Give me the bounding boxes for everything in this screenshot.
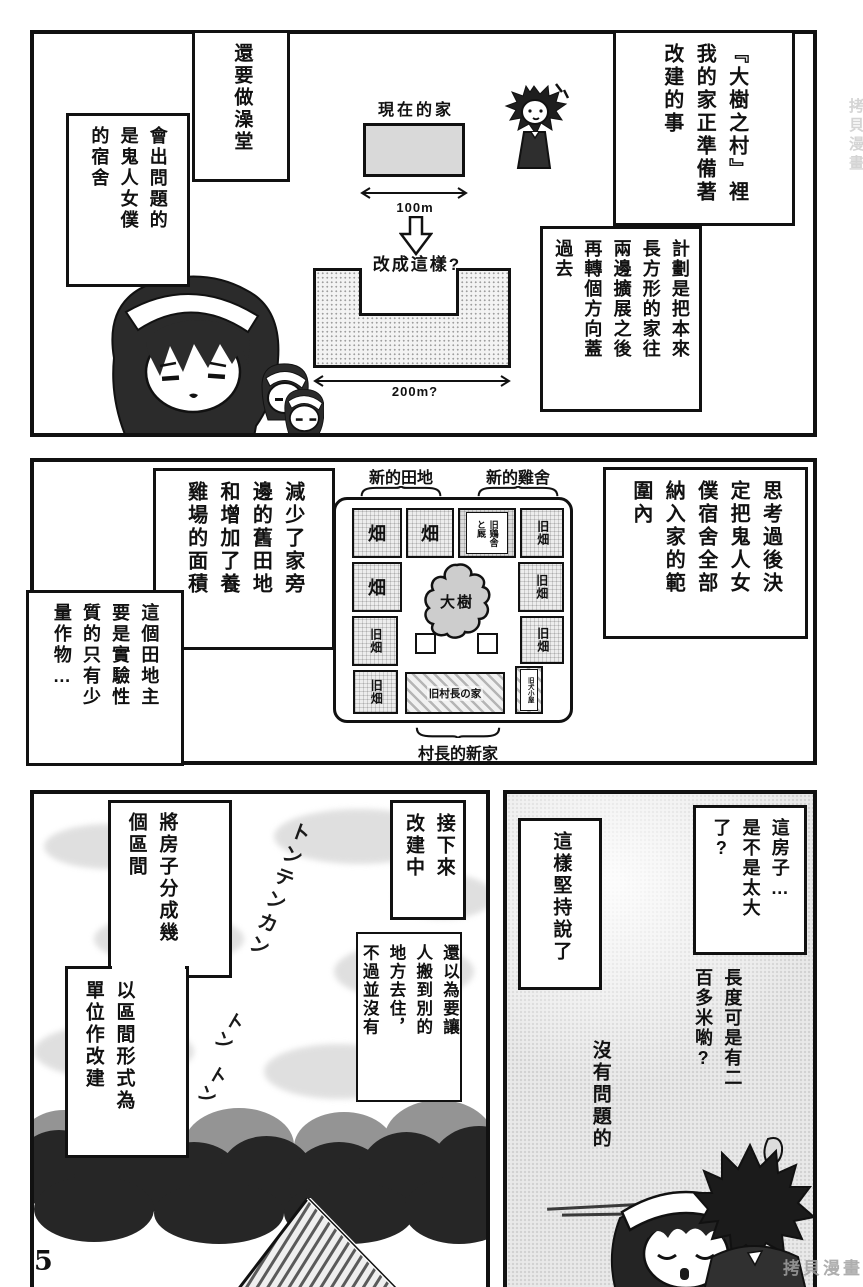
map-cell-label: 旧畑 (532, 627, 551, 653)
brace-icon (477, 486, 559, 498)
caption-box-bathhouse: 還要做澡堂 (192, 30, 290, 182)
caption-text: 還要做澡堂 (226, 43, 257, 153)
page-number: 5 (34, 1246, 53, 1277)
map-cell-label: 旧村長の家 (427, 686, 484, 701)
map-cell-label: 旧犬小屋 (526, 677, 533, 703)
caption-box-village-intro: 『大樹之村』裡 我的家正準備著 改建的事 (613, 30, 795, 226)
caption-text: 這樣堅持說了 (545, 831, 576, 963)
dialogue-length: 長度可是有二 百多米喲? (688, 968, 746, 1088)
map-village: 畑 畑 旧鶏舎 と厩 旧畑 畑 旧畑 旧畑 旧畑 旧畑 大樹 (333, 497, 573, 723)
map-cell-label: 旧畑 (531, 574, 550, 600)
bubble-text: 以區間形式為 單位作改建 (77, 980, 139, 1112)
watermark-bottom: 拷貝漫畫 (783, 1254, 863, 1279)
caption-box-insist: 這樣堅持說了 (518, 818, 602, 990)
map-label-new-fields: 新的田地 (357, 464, 445, 488)
map-cell-field: 畑 (352, 562, 402, 612)
caption-box-experimental: 這個田地主 要是實驗性 質的只有少 量作物… (26, 590, 184, 766)
map-cell-old-chief-house: 旧村長の家 (405, 672, 505, 714)
map-cell-label: 畑 (421, 520, 439, 546)
map-cell-old-field: 旧畑 (518, 562, 564, 612)
map-cell-label: 畑 (368, 520, 386, 546)
bubble-text: 將房子分成幾 個區間 (120, 812, 182, 944)
character-maid-group (86, 268, 324, 437)
caption-text: 還以為要讓 人搬到別的 地方去住， 不過並沒有 (356, 944, 463, 1037)
map-cell-old-field: 旧畑 (520, 508, 564, 558)
brace-icon (360, 486, 442, 498)
diagram-new-width: 200m? (375, 384, 455, 399)
watermark-top: 拷貝漫畫 (845, 98, 863, 174)
map-cell-old-coop: 旧鶏舎 と厩 (458, 508, 516, 558)
caption-box-plan: 計劃是把本來 長方形的家往 兩邊擴展之後 再轉個方向蓋 過去 (540, 226, 702, 412)
diagram-remodel-label: 改成這樣? (352, 250, 482, 275)
map-label-new-home: 村長的新家 (398, 740, 518, 764)
map-cell-label: 旧畑 (366, 679, 385, 705)
width-arrow-icon (358, 186, 470, 200)
caption-text: 會出問題的 是鬼人女僕 的宿舍 (84, 126, 171, 231)
map-cell-label: 旧鶏舎 と厩 (474, 520, 499, 547)
map-cell-old-field: 旧畑 (352, 616, 398, 666)
character-chibi-man (498, 80, 570, 176)
diagram-current-home-label: 現在的家 (366, 96, 466, 120)
tree-foliage (34, 1176, 154, 1242)
diagram-remodel-shape (313, 268, 511, 368)
map-tree-label: 大樹 (420, 591, 494, 612)
map-cell-old-field: 旧畑 (520, 616, 564, 664)
diagram-current-home-rect (363, 123, 465, 177)
caption-text: 這房子… 是不是太大 了? (706, 818, 793, 918)
diagram-current-width: 100m (380, 200, 450, 215)
map-cell-field: 畑 (406, 508, 454, 558)
dialogue-no-problem: 沒有問題的 (584, 1040, 615, 1150)
caption-text: 計劃是把本來 長方形的家往 兩邊擴展之後 再轉個方向蓋 過去 (548, 239, 694, 359)
caption-box-next: 接下來 改建中 (390, 800, 466, 920)
brace-icon (408, 726, 508, 738)
caption-box-decided: 思考過後決 定把鬼人女 僕宿舍全部 納入家的範 圍內 (603, 467, 808, 639)
manga-page: 『大樹之村』裡 我的家正準備著 改建的事 還要做澡堂 會出問題的 是鬼人女僕 的… (0, 0, 863, 1287)
map-cell-old-field: 旧畑 (353, 670, 398, 714)
caption-box-too-big: 這房子… 是不是太大 了? (693, 805, 807, 955)
caption-text: 『大樹之村』裡 我的家正準備著 改建的事 (655, 43, 752, 204)
map-label-new-coop: 新的雞舍 (474, 464, 562, 488)
caption-box-problem: 會出問題的 是鬼人女僕 的宿舍 (66, 113, 190, 287)
map-cell-label: 畑 (368, 574, 386, 600)
caption-text: 減少了家旁 邊的舊田地 和增加了養 雞場的面積 (179, 481, 309, 596)
map-cell-field: 畑 (352, 508, 402, 558)
bubble-join-patch (112, 962, 185, 972)
roof (237, 1198, 399, 1287)
caption-box-thought: 還以為要讓 人搬到別的 地方去住， 不過並沒有 (356, 932, 462, 1102)
diagram-remodel-notch (359, 268, 459, 316)
caption-text: 思考過後決 定把鬼人女 僕宿舍全部 納入家的範 圍內 (625, 480, 787, 595)
map-cell-label: 旧畑 (532, 520, 551, 546)
map-cell-old-doghouse: 旧犬小屋 (515, 666, 543, 714)
caption-text: 這個田地主 要是實驗性 質的只有少 量作物… (47, 603, 164, 708)
map-big-tree: 大樹 (420, 561, 494, 641)
map-cell-label: 旧畑 (365, 628, 384, 654)
caption-text: 接下來 改建中 (397, 813, 459, 879)
